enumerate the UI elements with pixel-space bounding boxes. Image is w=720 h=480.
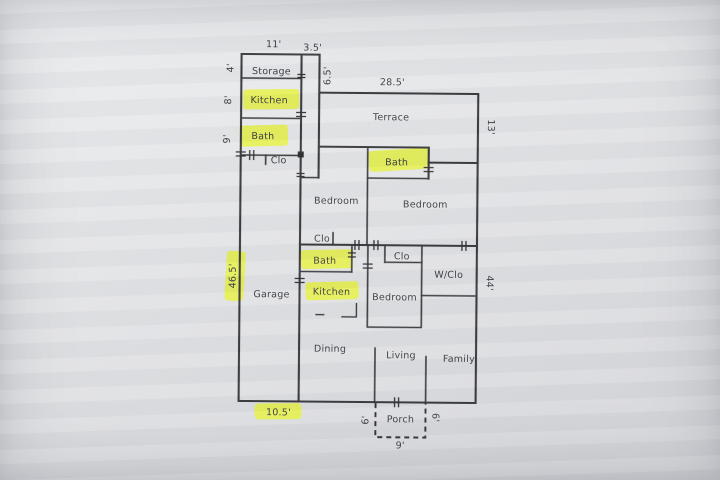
- dim-46-5ft: 46.5': [228, 263, 239, 288]
- wall-bedroom-divider: [367, 147, 368, 245]
- dim-6-5ft: 6.5': [322, 66, 333, 85]
- wall-storage-bottom: [241, 78, 301, 79]
- dim-10-5ft: 10.5': [266, 407, 291, 418]
- wall-terrace-left: [319, 93, 320, 178]
- dim-44ft: 44': [484, 275, 495, 291]
- room-label-porch: Porch: [387, 414, 415, 425]
- room-label-living: Living: [386, 350, 416, 361]
- dim-3-5ft: 3.5': [303, 42, 322, 53]
- room-label-family: Family: [443, 354, 475, 365]
- room-label-bedroom-left: Bedroom: [314, 196, 359, 207]
- kitchen-counter-mark: [341, 303, 356, 317]
- dim-9ft-porch: 9': [396, 440, 405, 451]
- dim-28-5ft: 28.5': [380, 77, 405, 88]
- room-label-dining: Dining: [314, 344, 346, 355]
- dim-8ft: 8': [223, 95, 234, 104]
- room-label-bath-left: Bath: [251, 131, 274, 142]
- room-label-bath-top: Bath: [385, 157, 408, 168]
- room-label-wclo: W/Clo: [434, 270, 463, 281]
- wall-bath-top-bottom: [368, 178, 429, 179]
- dim-4ft: 4': [225, 63, 236, 72]
- wall-node: [298, 151, 304, 157]
- room-label-kitchen-left: Kitchen: [250, 95, 288, 106]
- dim-6ft-porch-right: 6': [429, 413, 440, 422]
- room-label-clo-bedroom: Clo: [314, 234, 330, 245]
- room-label-kitchen-mid: Kitchen: [313, 287, 351, 298]
- dim-9ft-left: 9': [222, 134, 233, 143]
- room-label-garage: Garage: [253, 289, 289, 300]
- room-label-bath-mid: Bath: [313, 256, 336, 267]
- dim-13ft: 13': [485, 119, 496, 135]
- floorplan-drawing: Storage Kitchen Bath Clo Terrace Bath Be…: [0, 0, 720, 480]
- wall-kitchen-left-bottom: [241, 118, 301, 119]
- dim-6ft-porch-left: 6': [360, 415, 371, 424]
- room-label-storage: Storage: [252, 66, 291, 77]
- room-label-terrace: Terrace: [372, 112, 409, 123]
- wall-bedroom-block-top: [319, 147, 429, 148]
- scanned-floorplan-photo: Storage Kitchen Bath Clo Terrace Bath Be…: [0, 0, 720, 480]
- room-label-bedroom-right: Bedroom: [403, 199, 448, 210]
- room-label-bedroom-center: Bedroom: [372, 292, 417, 303]
- room-label-clo-center: Clo: [394, 251, 410, 262]
- dim-11ft: 11': [266, 39, 282, 50]
- door-ticks: [234, 74, 468, 408]
- walls: [233, 54, 478, 438]
- room-label-clo-left: Clo: [271, 155, 287, 166]
